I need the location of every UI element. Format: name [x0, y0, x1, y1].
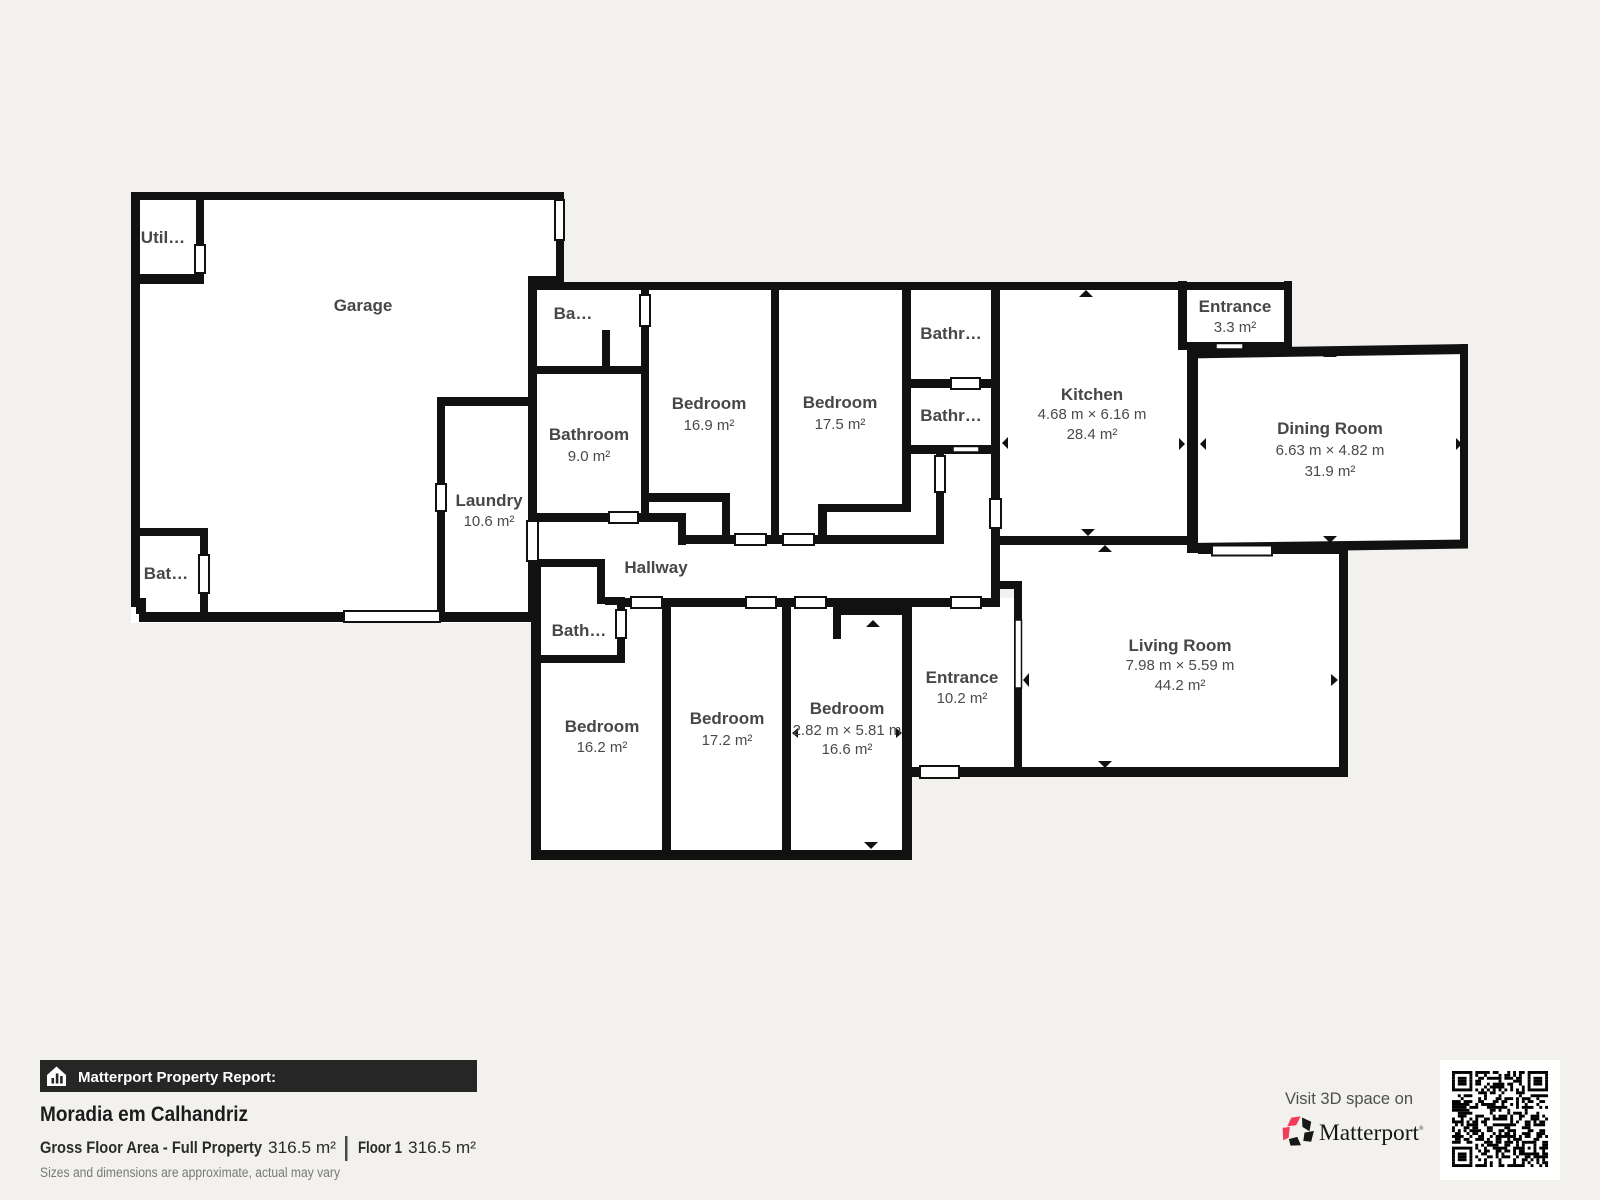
svg-text:16.6 m²: 16.6 m²: [822, 741, 873, 758]
svg-text:Moradia em Calhandriz: Moradia em Calhandriz: [40, 1103, 248, 1126]
svg-text:Gross Floor Area - Full Proper: Gross Floor Area - Full Property: [40, 1138, 262, 1157]
svg-text:Floor 1: Floor 1: [358, 1138, 402, 1157]
svg-text:Bathroom: Bathroom: [549, 425, 629, 444]
svg-text:Bathr…: Bathr…: [920, 406, 981, 425]
svg-text:Bedroom: Bedroom: [803, 393, 878, 412]
svg-text:16.9 m²: 16.9 m²: [684, 417, 735, 434]
svg-text:Visit 3D space on: Visit 3D space on: [1285, 1090, 1413, 1108]
svg-text:Dining Room: Dining Room: [1277, 419, 1383, 438]
svg-text:Entrance: Entrance: [1199, 297, 1272, 316]
svg-text:Bedroom: Bedroom: [810, 699, 885, 718]
svg-text:Ba…: Ba…: [554, 304, 593, 323]
svg-text:4.68 m × 6.16 m: 4.68 m × 6.16 m: [1038, 406, 1147, 423]
svg-text:7.98 m × 5.59 m: 7.98 m × 5.59 m: [1126, 657, 1235, 674]
svg-text:9.0 m²: 9.0 m²: [568, 448, 611, 465]
svg-text:16.2 m²: 16.2 m²: [577, 739, 628, 756]
svg-text:Bedroom: Bedroom: [690, 709, 765, 728]
svg-text:®: ®: [1419, 1125, 1424, 1132]
svg-text:10.2 m²: 10.2 m²: [937, 690, 988, 707]
svg-text:31.9 m²: 31.9 m²: [1305, 463, 1356, 480]
svg-text:Bat…: Bat…: [144, 564, 188, 583]
svg-text:17.2 m²: 17.2 m²: [702, 732, 753, 749]
svg-text:3.3 m²: 3.3 m²: [1214, 319, 1257, 336]
svg-text:316.5 m²: 316.5 m²: [268, 1138, 336, 1157]
svg-text:Bath…: Bath…: [552, 621, 607, 640]
svg-text:10.6 m²: 10.6 m²: [464, 513, 515, 530]
svg-text:Kitchen: Kitchen: [1061, 385, 1123, 404]
svg-text:Matterport: Matterport: [1319, 1120, 1420, 1145]
svg-text:Hallway: Hallway: [624, 558, 688, 577]
svg-text:Matterport Property Report:: Matterport Property Report:: [78, 1069, 276, 1086]
svg-text:Sizes and dimensions are appro: Sizes and dimensions are approximate, ac…: [40, 1165, 340, 1180]
svg-text:Util…: Util…: [141, 228, 185, 247]
svg-text:Garage: Garage: [334, 296, 393, 315]
svg-text:Entrance: Entrance: [926, 668, 999, 687]
svg-text:2.82 m × 5.81 m: 2.82 m × 5.81 m: [793, 722, 902, 739]
svg-text:Living Room: Living Room: [1129, 636, 1232, 655]
svg-text:44.2 m²: 44.2 m²: [1155, 677, 1206, 694]
svg-text:17.5 m²: 17.5 m²: [815, 416, 866, 433]
svg-text:Bathr…: Bathr…: [920, 324, 981, 343]
svg-text:6.63 m × 4.82 m: 6.63 m × 4.82 m: [1276, 442, 1385, 459]
svg-text:28.4 m²: 28.4 m²: [1067, 426, 1118, 443]
svg-text:316.5 m²: 316.5 m²: [408, 1138, 476, 1157]
svg-text:Bedroom: Bedroom: [565, 717, 640, 736]
svg-text:Laundry: Laundry: [455, 491, 523, 510]
svg-text:Bedroom: Bedroom: [672, 394, 747, 413]
